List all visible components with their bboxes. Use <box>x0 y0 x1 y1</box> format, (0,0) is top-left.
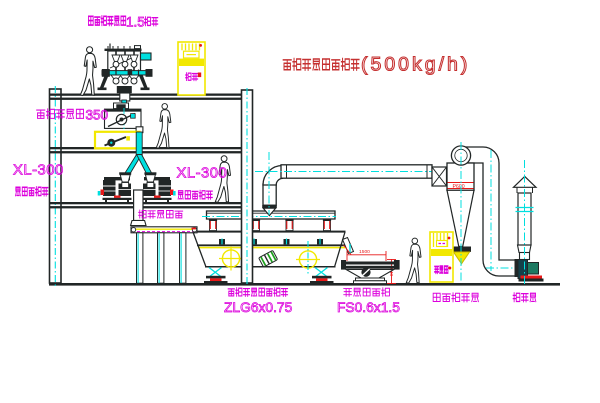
svg-text:XL-300: XL-300 <box>13 163 64 179</box>
svg-text:350: 350 <box>86 108 109 123</box>
svg-text:XL-300: XL-300 <box>177 166 228 182</box>
svg-text:1500: 1500 <box>359 249 370 255</box>
svg-text:(500kg/h): (500kg/h) <box>361 54 470 76</box>
svg-text:ZLG6x0.75: ZLG6x0.75 <box>224 300 293 315</box>
svg-text:FS0.6x1.5: FS0.6x1.5 <box>337 300 400 315</box>
svg-text:1.5: 1.5 <box>126 15 145 30</box>
svg-text:P600: P600 <box>453 184 465 190</box>
